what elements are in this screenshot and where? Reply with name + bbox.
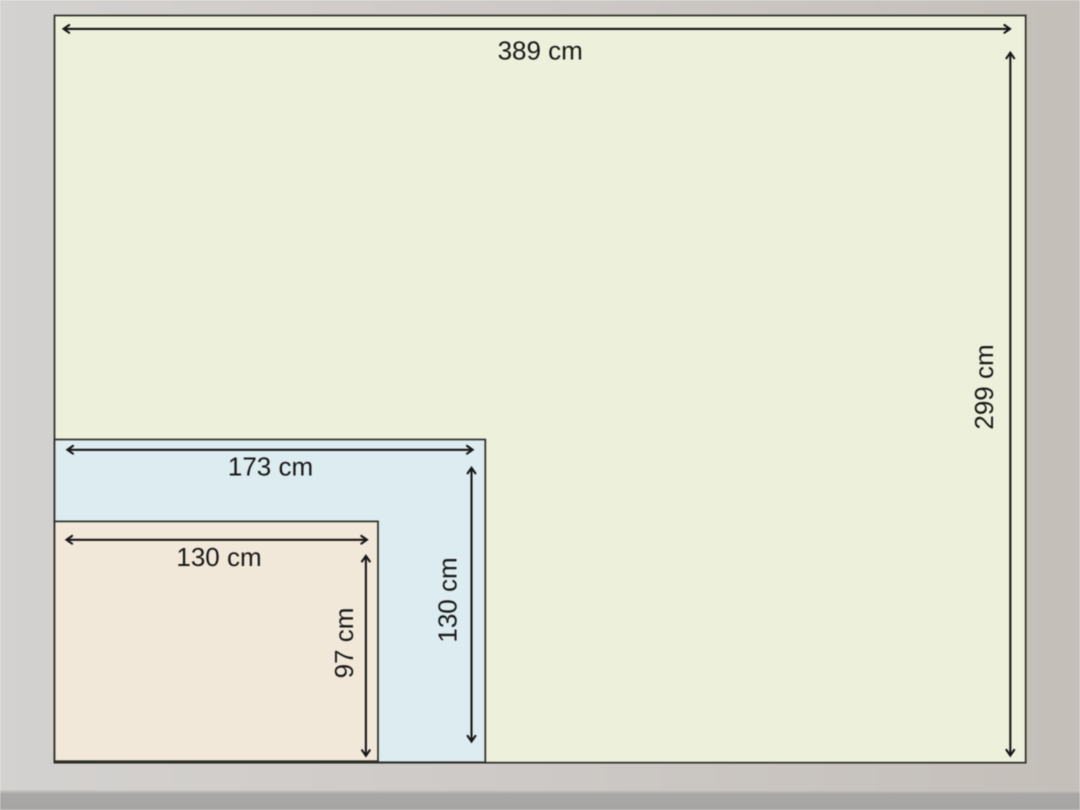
svg-text:389 cm: 389 cm bbox=[498, 35, 583, 65]
svg-text:130 cm: 130 cm bbox=[433, 557, 463, 642]
svg-text:299 cm: 299 cm bbox=[969, 344, 999, 429]
svg-text:97 cm: 97 cm bbox=[329, 608, 359, 679]
svg-text:130 cm: 130 cm bbox=[176, 542, 261, 572]
svg-text:173 cm: 173 cm bbox=[228, 452, 313, 482]
